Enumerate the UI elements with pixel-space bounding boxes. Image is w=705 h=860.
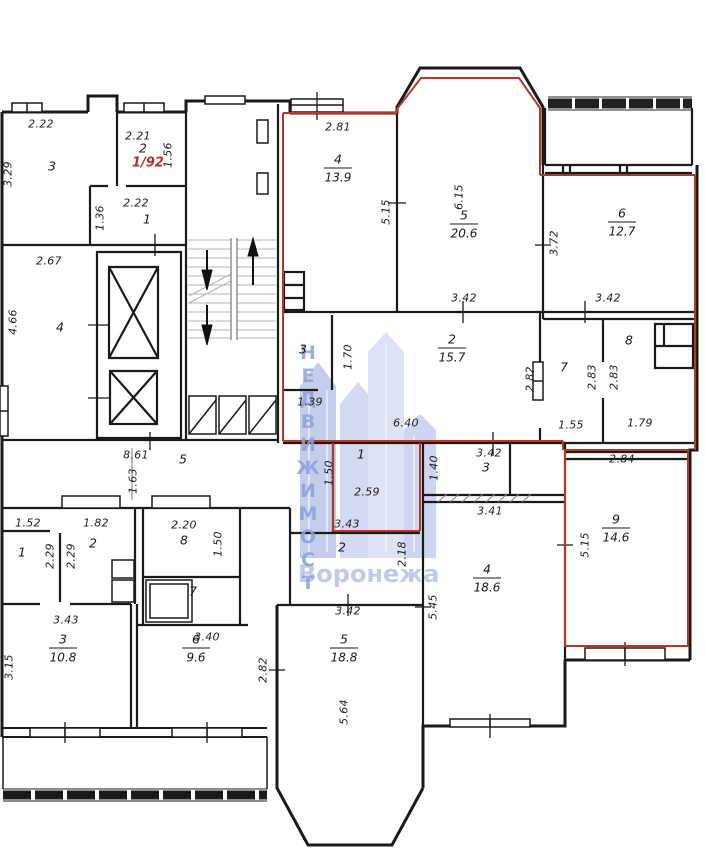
floor-plan-drawing <box>0 0 705 860</box>
upper-balcony-railing <box>548 97 692 110</box>
flat-number-label: 1/92 <box>132 156 164 171</box>
watermark-logo <box>300 332 436 558</box>
watermark-city-text: Воронежа <box>298 560 439 588</box>
watermark-vertical-text: НЕДВИЖИМОСТ <box>297 342 319 595</box>
stair-treads <box>188 240 276 338</box>
floor-plan: НЕДВИЖИМОСТ Воронежа 1/92 2.222.212.222.… <box>0 0 705 860</box>
